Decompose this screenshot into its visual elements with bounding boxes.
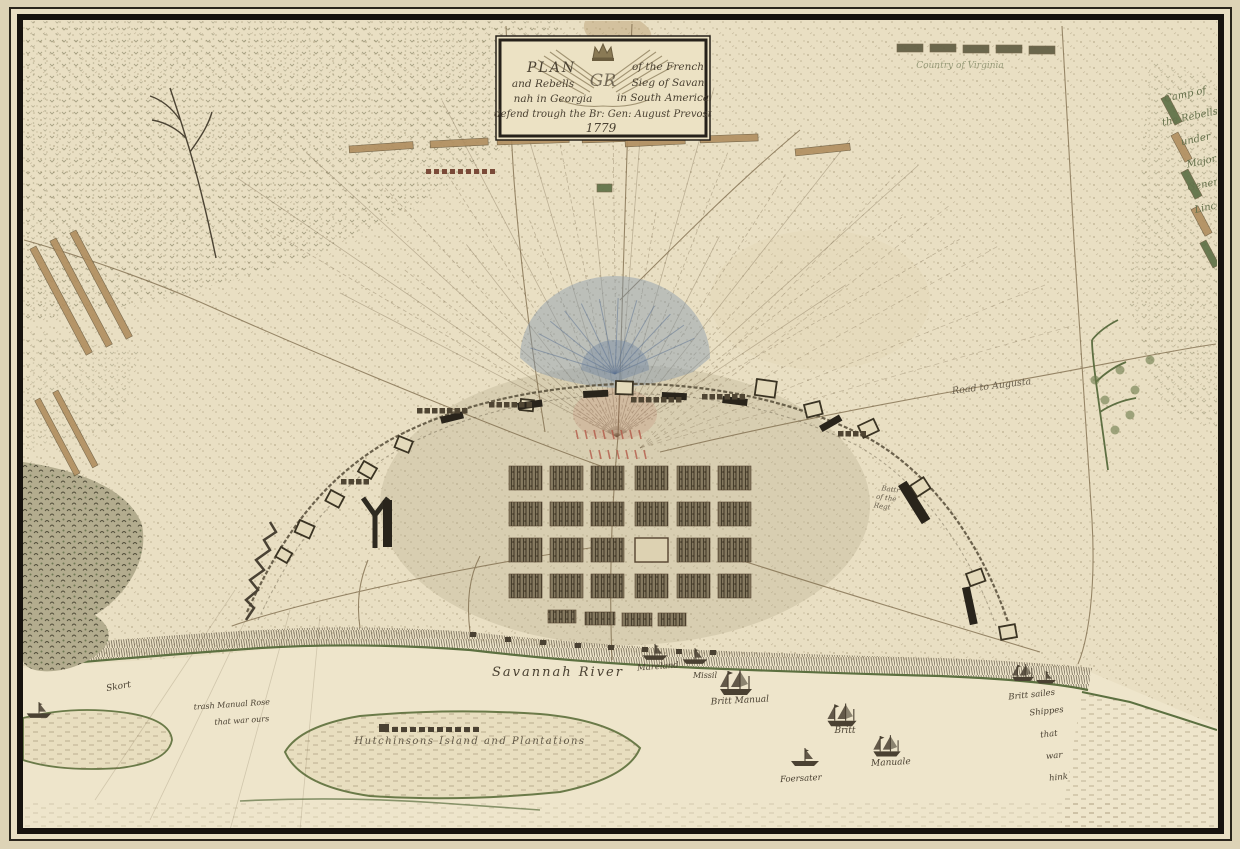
- siege-map: Savannah River Hutchinsons Island and Pl…: [0, 0, 1240, 849]
- title-line3b: in South America: [617, 92, 709, 104]
- svg-text:that: that: [1040, 729, 1059, 741]
- title-line2b: Sieg of Savan: [632, 77, 705, 89]
- map-canvas: Savannah River Hutchinsons Island and Pl…: [0, 0, 1240, 849]
- svg-text:hink: hink: [1049, 772, 1069, 784]
- crown-icon: [592, 44, 614, 61]
- svg-text:war: war: [1046, 750, 1064, 762]
- title-plan: PLAN: [526, 60, 576, 76]
- galley-label: Missil: [692, 671, 718, 680]
- virginia-camp-label: Country of Virginia: [916, 61, 1004, 71]
- island-label: Hutchinsons Island and Plantations: [353, 736, 585, 747]
- title-line1b: of the French: [632, 61, 704, 73]
- title-line3a: nah in Georgia: [514, 93, 593, 105]
- island-small-marsh: [23, 710, 172, 769]
- marsh-bottom-band: [23, 800, 1123, 828]
- ship-label: Manuale: [870, 757, 911, 769]
- title-line2a: and Rebells: [512, 78, 575, 90]
- map-content: Savannah River Hutchinsons Island and Pl…: [23, 18, 1238, 831]
- title-line4: defend trough the Br: Gen: August Prevos…: [494, 109, 712, 120]
- title-year: 1779: [586, 121, 617, 135]
- title-cartouche: GR PLAN of the French and Rebells Sieg o…: [494, 36, 712, 140]
- paper-stain-3: [710, 230, 930, 370]
- royal-cipher: GR: [590, 71, 617, 91]
- ship-label: Britt: [833, 726, 855, 736]
- river-label: Savannah River: [492, 665, 624, 680]
